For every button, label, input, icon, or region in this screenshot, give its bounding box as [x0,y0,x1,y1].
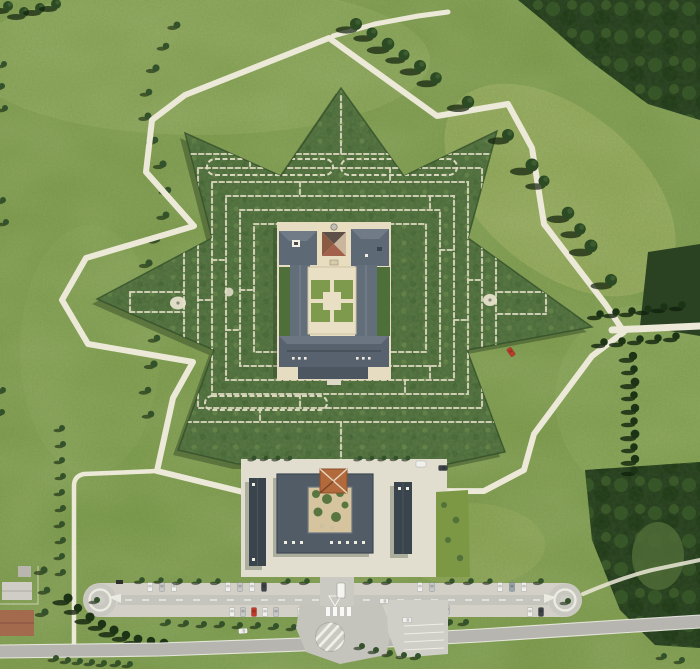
car [249,583,254,592]
aerial-photo [0,0,700,669]
entrance-complex [241,456,470,598]
car [439,465,448,470]
villa-south-lower-roof [298,367,368,379]
car [403,617,412,622]
car [273,608,278,617]
chapel-dome [331,224,337,230]
villa-chapel [317,223,350,269]
car [417,583,422,592]
car [238,628,247,634]
forest-east-strip [640,244,700,336]
car [509,583,514,592]
car [159,583,164,592]
villa-courtyard [308,267,356,334]
maze-small-clearing [225,288,234,297]
car [429,583,434,592]
car [225,583,230,592]
east-lane [612,326,700,330]
chapel-door [330,260,338,265]
aerial-photo-canvas [0,0,700,669]
van [416,461,426,467]
car [521,583,526,592]
maze-east-chamber-feature [488,298,491,301]
car [237,583,242,592]
farm-shed [18,566,31,577]
car [251,608,256,617]
car [538,608,543,617]
entrance-pyramid-skylight [320,469,347,493]
car [261,583,266,592]
car [380,598,389,603]
car [527,608,532,617]
car [229,608,234,617]
villa-portico [327,379,341,385]
car [116,580,123,584]
villa-west-hedge [279,267,290,336]
villa-east-hedge [377,267,390,336]
scrub-patch-east [436,490,470,577]
car [147,583,152,592]
east-parking-lot [386,600,448,658]
maze-west-chamber-feature [176,301,179,304]
car [262,608,267,617]
truck [337,583,345,598]
car [497,583,502,592]
villa [273,222,391,385]
car [240,608,245,617]
